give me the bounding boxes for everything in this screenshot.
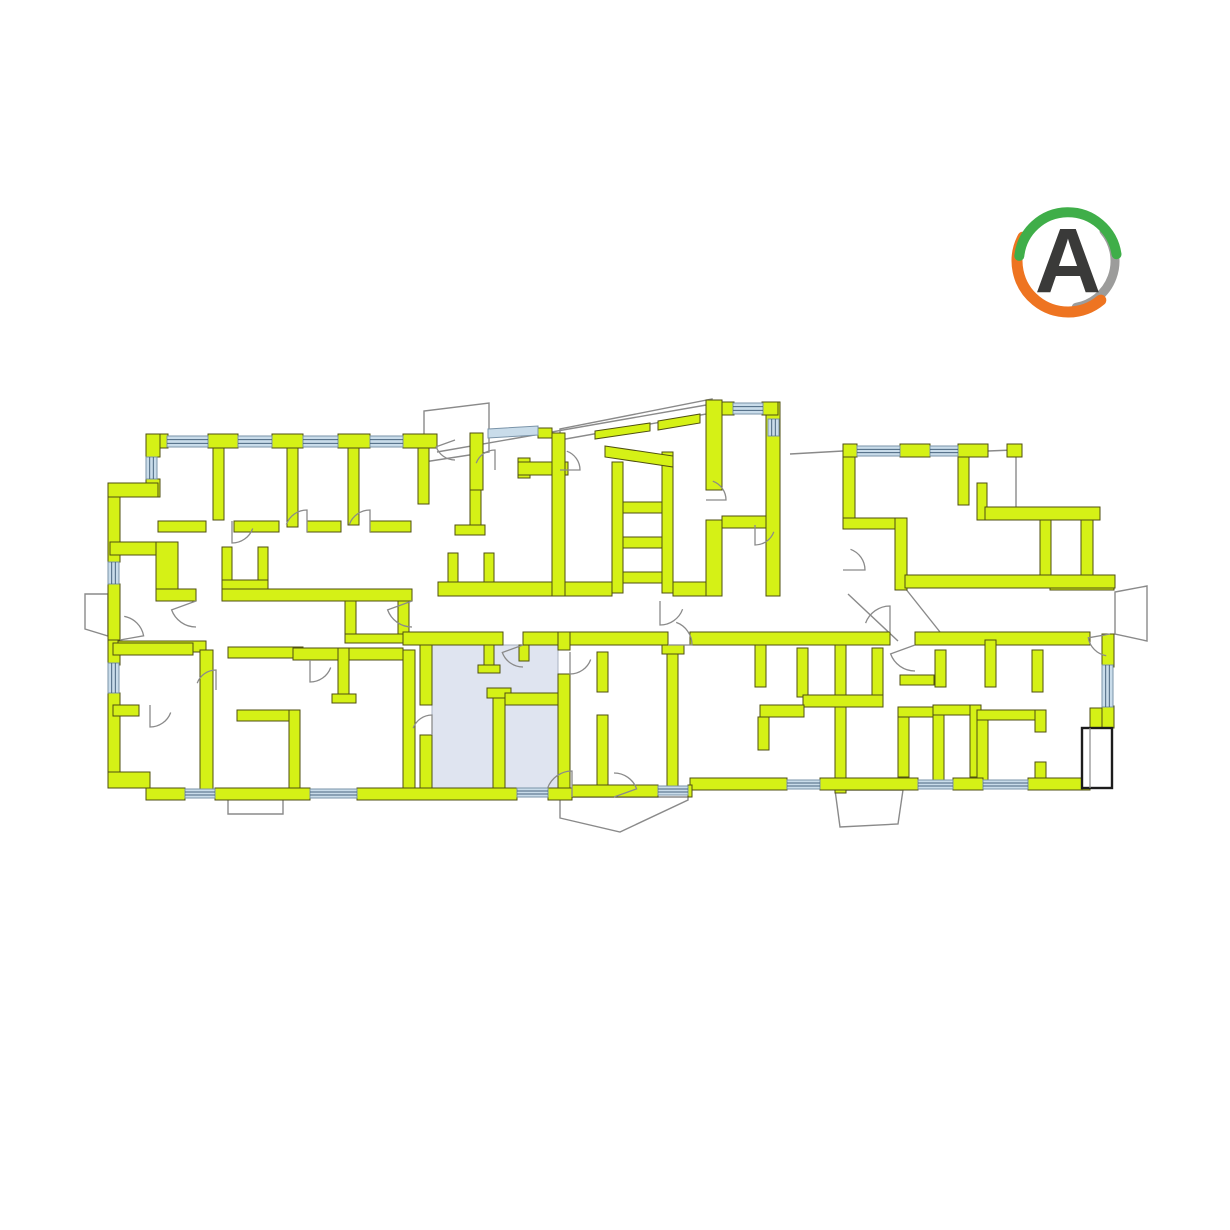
window <box>857 446 900 456</box>
wall <box>538 428 552 438</box>
wall <box>552 433 565 596</box>
wall <box>519 645 529 661</box>
window <box>658 786 688 795</box>
wall <box>403 650 415 788</box>
door-swing <box>120 616 144 640</box>
wall <box>623 502 662 513</box>
wall <box>900 444 930 457</box>
wall <box>935 650 946 687</box>
wall <box>1028 778 1082 790</box>
wall <box>272 434 303 448</box>
door-swing <box>172 601 196 627</box>
wall <box>113 705 139 716</box>
wall <box>1081 520 1093 578</box>
wall <box>797 648 808 697</box>
wall <box>113 643 193 655</box>
wall <box>455 525 485 535</box>
floor-plan <box>0 0 1230 1230</box>
door-swing <box>660 601 683 625</box>
wall <box>755 645 766 687</box>
wall <box>523 632 668 645</box>
door-swing <box>866 606 890 632</box>
wall <box>338 648 349 698</box>
wall <box>208 434 238 448</box>
wall <box>985 640 996 687</box>
porch-outline <box>560 797 688 832</box>
wall <box>597 652 608 692</box>
wall <box>612 462 623 593</box>
wall <box>156 589 196 601</box>
walls-layer <box>108 400 1115 800</box>
wall <box>977 710 988 787</box>
wall <box>108 483 158 497</box>
wall <box>872 648 883 695</box>
wall <box>905 575 1115 588</box>
wall <box>222 580 268 589</box>
wall <box>565 582 612 596</box>
window <box>930 446 958 456</box>
wall <box>558 632 570 650</box>
wall <box>420 645 432 705</box>
wall <box>900 675 934 685</box>
window <box>310 789 357 798</box>
wall <box>690 632 890 645</box>
wall <box>667 652 678 790</box>
wall <box>222 589 412 601</box>
wall <box>1102 706 1114 728</box>
wall <box>505 693 560 705</box>
wall <box>762 402 778 415</box>
wall <box>234 521 279 532</box>
wall <box>662 452 673 593</box>
wall <box>478 665 500 673</box>
door-swing <box>668 622 692 645</box>
window <box>733 403 763 414</box>
wall <box>228 647 303 658</box>
wall <box>289 710 300 788</box>
wall <box>438 582 552 596</box>
wall <box>722 516 766 528</box>
door-swing <box>843 549 865 570</box>
wall <box>673 582 706 596</box>
wall <box>1102 634 1114 667</box>
wall <box>403 434 437 448</box>
wall <box>933 715 944 787</box>
window <box>517 788 548 797</box>
wall <box>420 735 432 788</box>
wall <box>418 448 429 504</box>
wall <box>1007 444 1022 457</box>
wall <box>953 778 983 790</box>
window <box>1102 665 1113 707</box>
window <box>108 562 119 584</box>
balcony-layer <box>1082 728 1112 788</box>
door-swing <box>413 715 432 735</box>
wall <box>213 448 224 520</box>
wall <box>623 537 662 548</box>
wall <box>835 645 846 793</box>
wall <box>108 772 150 788</box>
wall <box>146 434 160 457</box>
parapet-line <box>905 588 940 632</box>
window <box>370 436 403 447</box>
wall <box>722 402 734 415</box>
wall <box>760 705 804 717</box>
wall <box>690 778 787 790</box>
window <box>146 457 157 479</box>
porch-outline <box>85 594 108 636</box>
wall <box>803 695 883 707</box>
window <box>918 780 953 789</box>
porch-outline <box>1115 586 1147 641</box>
wall <box>758 717 769 750</box>
window <box>983 780 1028 789</box>
wall <box>146 788 185 800</box>
wall <box>820 778 918 790</box>
wall <box>215 788 310 800</box>
wall <box>307 521 341 532</box>
wall <box>706 400 722 490</box>
window <box>238 436 272 447</box>
window <box>303 436 338 447</box>
wall <box>1035 710 1046 732</box>
wall <box>958 457 969 505</box>
door-swing <box>310 660 331 682</box>
door-swing <box>150 705 171 727</box>
wall <box>843 444 857 457</box>
wall <box>338 434 370 448</box>
window <box>185 789 215 798</box>
wall <box>370 521 411 532</box>
window <box>108 663 119 693</box>
wall <box>572 785 658 797</box>
wall <box>985 507 1100 520</box>
wall <box>958 444 988 457</box>
wall <box>332 694 356 703</box>
wall <box>548 788 572 800</box>
wall <box>623 572 662 583</box>
wall <box>915 632 1090 645</box>
wall <box>977 710 1041 720</box>
window <box>787 780 820 789</box>
door-swing <box>891 645 915 671</box>
wall <box>688 785 692 797</box>
wall <box>493 688 505 788</box>
parapet-line <box>790 451 843 454</box>
wall <box>357 788 517 800</box>
wall <box>706 520 722 596</box>
balcony <box>1082 728 1112 788</box>
wall <box>156 542 178 589</box>
wall <box>108 584 120 640</box>
wall <box>345 634 409 643</box>
window <box>167 436 208 447</box>
wall <box>403 632 503 645</box>
wall <box>662 645 684 654</box>
wall <box>158 521 206 532</box>
logo-letter: A <box>1028 209 1108 313</box>
wall <box>843 518 900 529</box>
wall <box>597 715 608 790</box>
wall <box>470 490 481 530</box>
wall <box>843 457 855 525</box>
porch-outline <box>835 790 903 827</box>
door-swing <box>570 652 591 674</box>
wall <box>1032 650 1043 692</box>
window <box>768 419 779 436</box>
wall <box>1040 520 1051 577</box>
